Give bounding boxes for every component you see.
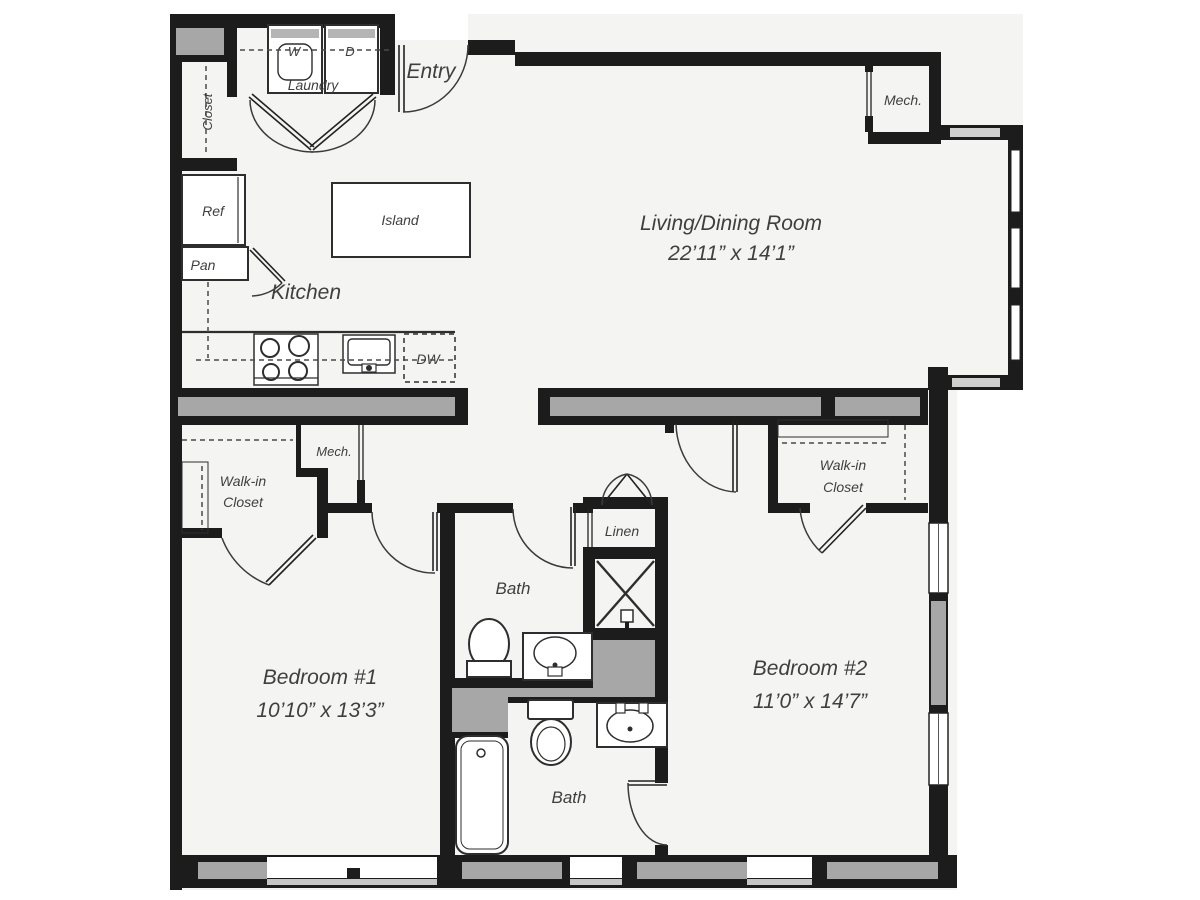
kitchen-label: Kitchen [271,281,341,304]
bath-lower-label: Bath [552,788,587,807]
dryer-label: D [345,44,354,59]
washer-label: W [288,44,302,59]
living-room-label: Living/Dining Room [640,212,822,235]
bedroom1-label: Bedroom #1 [263,666,377,689]
bedroom2-window-south [747,857,812,878]
walk-in-closet2-label-1: Walk-in [820,457,867,473]
outside-entry-notch [395,14,468,40]
vanity-upper [523,633,592,680]
living-room-dims: 22’11” x 14’1” [667,242,795,265]
linen-label: Linen [605,523,639,539]
bedroom1-dims: 10’10” x 13’3” [256,699,384,722]
outside-bay [1023,14,1030,394]
bay-window-bottom-glass [952,378,1000,387]
walk-in-closet2-label-2: Closet [823,479,864,495]
laundry-label: Laundry [288,77,340,93]
floor-plan-drawing: Entry Laundry W D Closet Ref Pan Kitchen… [0,0,1200,900]
bay-window-glass-2 [1011,228,1020,288]
bathtub [456,736,508,854]
walk-in-closet1-label-1: Walk-in [220,473,267,489]
bedroom2-label: Bedroom #2 [753,657,868,680]
bedroom2-dims: 11’0” x 14’7” [753,690,868,713]
kitchen-sink [343,335,395,373]
bay-window-top-glass [950,128,1000,137]
bath-upper-label: Bath [496,579,531,598]
island-label: Island [381,212,420,228]
pantry-label: Pan [191,257,216,273]
refrigerator-label: Ref [202,203,226,219]
vanity-lower [597,703,667,747]
floor-plan-page: Entry Laundry W D Closet Ref Pan Kitchen… [0,0,1200,900]
bath2-window [570,857,622,878]
mech-upper-label: Mech. [884,92,922,108]
window-mullion [347,868,360,878]
walk-in-closet1-label-2: Closet [223,494,264,510]
bay-window-glass-1 [1011,150,1020,212]
mech-hall-label: Mech. [316,444,351,459]
entry-closet-label: Closet [200,92,215,130]
entry-label: Entry [406,60,457,83]
bay-window-glass-3 [1011,305,1020,360]
toilet-upper [467,619,511,677]
outside-right [957,390,1030,890]
toilet-lower [528,700,573,765]
dishwasher-label: DW [416,351,441,367]
